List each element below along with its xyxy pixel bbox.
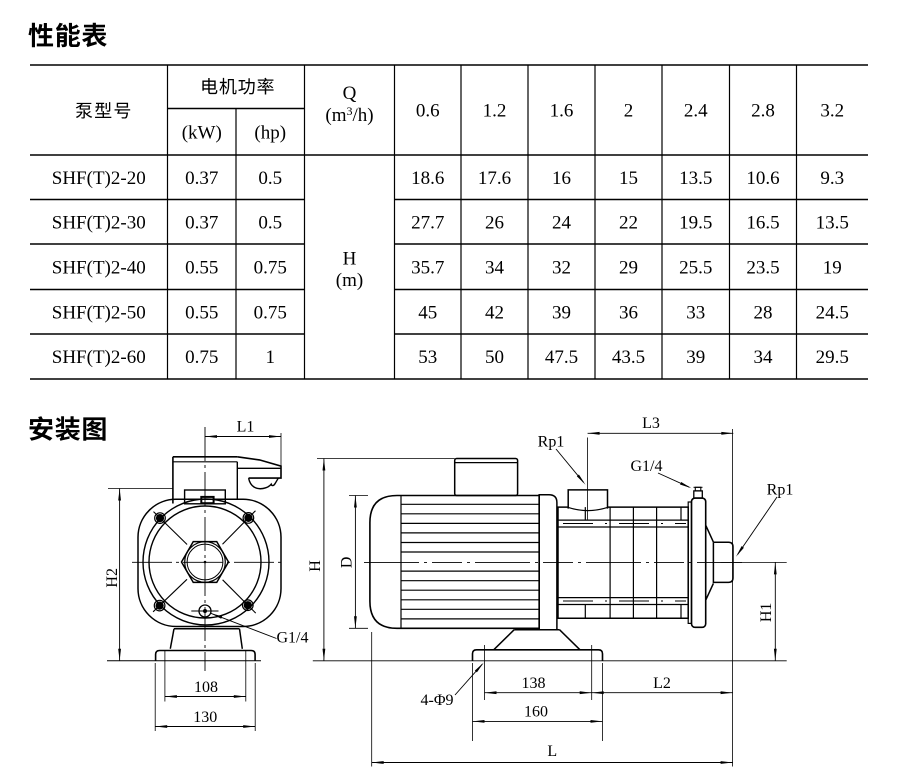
svg-text:H: H (307, 560, 324, 572)
svg-text:47.5: 47.5 (545, 347, 578, 368)
svg-text:SHF(T)2-60: SHF(T)2-60 (52, 347, 146, 368)
svg-text:50: 50 (485, 347, 504, 368)
svg-text:L3: L3 (642, 415, 660, 432)
svg-text:19: 19 (823, 257, 842, 278)
svg-text:34: 34 (754, 347, 774, 368)
svg-text:SHF(T)2-20: SHF(T)2-20 (52, 168, 146, 189)
svg-text:2.4: 2.4 (684, 101, 708, 122)
svg-text:SHF(T)2-40: SHF(T)2-40 (52, 257, 146, 278)
svg-text:28: 28 (754, 302, 773, 323)
svg-text:24.5: 24.5 (816, 302, 849, 323)
svg-text:0.55: 0.55 (185, 302, 218, 323)
svg-text:4-Φ9: 4-Φ9 (420, 692, 453, 709)
svg-text:13.5: 13.5 (679, 168, 712, 189)
svg-text:Rp1: Rp1 (767, 481, 794, 498)
svg-text:33: 33 (686, 302, 705, 323)
svg-text:39: 39 (686, 347, 705, 368)
svg-text:130: 130 (193, 709, 217, 726)
svg-text:29: 29 (619, 257, 638, 278)
svg-text:0.75: 0.75 (185, 347, 218, 368)
svg-text:0.75: 0.75 (254, 257, 287, 278)
svg-text:(kW): (kW) (182, 122, 222, 143)
svg-text:L: L (547, 743, 557, 760)
svg-text:43.5: 43.5 (612, 347, 645, 368)
svg-text:45: 45 (418, 302, 437, 323)
svg-text:36: 36 (619, 302, 638, 323)
svg-text:0.37: 0.37 (185, 168, 218, 189)
svg-text:Q: Q (343, 83, 357, 104)
svg-text:1.6: 1.6 (550, 101, 574, 122)
svg-text:42: 42 (485, 302, 504, 323)
svg-text:24: 24 (552, 212, 572, 233)
svg-text:19.5: 19.5 (679, 212, 712, 233)
svg-text:15: 15 (619, 168, 638, 189)
svg-text:34: 34 (485, 257, 505, 278)
svg-text:H: H (343, 249, 357, 270)
svg-text:16.5: 16.5 (746, 212, 779, 233)
svg-text:29.5: 29.5 (816, 347, 849, 368)
svg-text:138: 138 (522, 675, 546, 692)
svg-text:0.75: 0.75 (254, 302, 287, 323)
svg-text:0.37: 0.37 (185, 212, 218, 233)
svg-text:3.2: 3.2 (820, 101, 844, 122)
svg-text:53: 53 (418, 347, 437, 368)
svg-text:9.3: 9.3 (820, 168, 844, 189)
svg-text:10.6: 10.6 (746, 168, 779, 189)
svg-text:160: 160 (524, 704, 548, 721)
svg-text:D: D (338, 557, 355, 569)
svg-text:G1/4: G1/4 (277, 630, 309, 647)
svg-text:L1: L1 (237, 418, 255, 435)
svg-text:H1: H1 (758, 603, 775, 623)
svg-text:(hp): (hp) (254, 122, 286, 143)
svg-text:2.8: 2.8 (751, 101, 775, 122)
svg-text:23.5: 23.5 (746, 257, 779, 278)
svg-text:Rp1: Rp1 (538, 434, 565, 451)
svg-text:35.7: 35.7 (411, 257, 444, 278)
svg-text:2: 2 (624, 101, 634, 122)
svg-text:22: 22 (619, 212, 638, 233)
svg-text:H2: H2 (104, 568, 121, 588)
svg-text:0.55: 0.55 (185, 257, 218, 278)
svg-text:SHF(T)2-50: SHF(T)2-50 (52, 302, 146, 323)
svg-text:1.2: 1.2 (483, 101, 507, 122)
svg-text:13.5: 13.5 (816, 212, 849, 233)
svg-text:(m): (m) (336, 270, 363, 291)
svg-text:SHF(T)2-30: SHF(T)2-30 (52, 212, 146, 233)
svg-text:0.6: 0.6 (416, 101, 440, 122)
svg-text:18.6: 18.6 (411, 168, 444, 189)
svg-text:39: 39 (552, 302, 571, 323)
svg-text:108: 108 (194, 679, 218, 696)
svg-text:0.5: 0.5 (258, 212, 282, 233)
svg-text:0.5: 0.5 (258, 168, 282, 189)
svg-text:32: 32 (552, 257, 571, 278)
svg-text:26: 26 (485, 212, 504, 233)
svg-text:17.6: 17.6 (478, 168, 511, 189)
svg-text:16: 16 (552, 168, 571, 189)
svg-text:25.5: 25.5 (679, 257, 712, 278)
svg-text:L2: L2 (653, 675, 671, 692)
svg-text:1: 1 (266, 347, 276, 368)
svg-text:27.7: 27.7 (411, 212, 444, 233)
svg-text:G1/4: G1/4 (631, 458, 663, 475)
